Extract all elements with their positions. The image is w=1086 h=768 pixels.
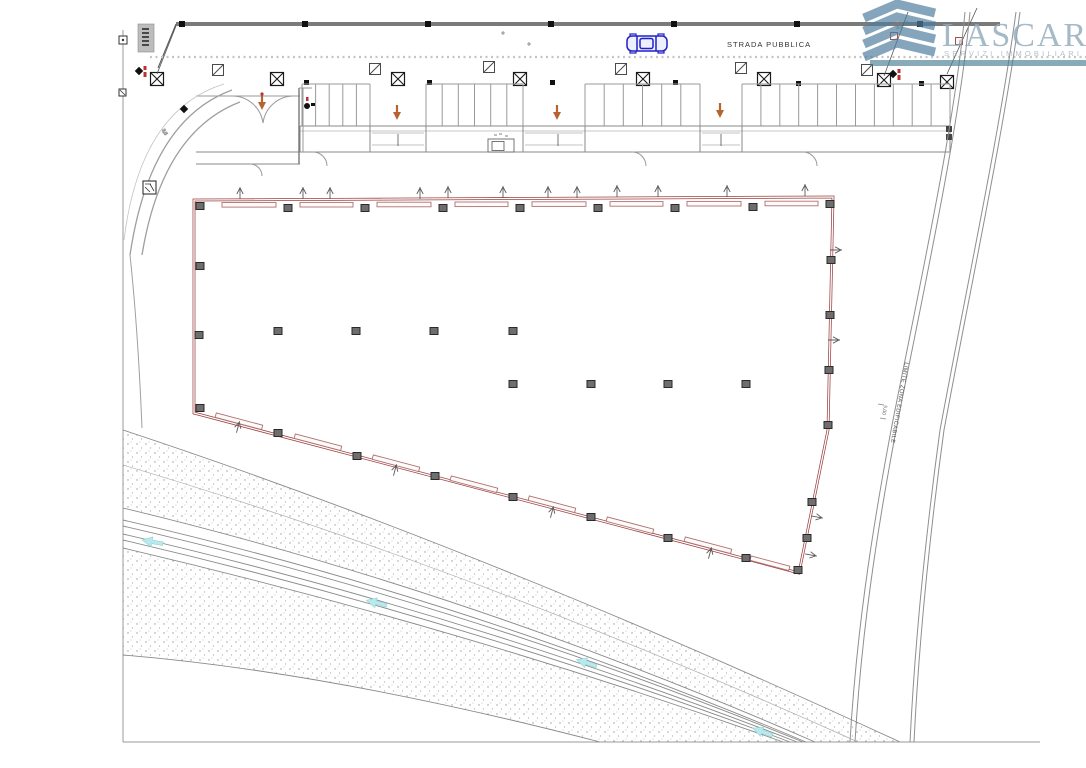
buildable-limit-label: LIMITE ZONA EDIFICABILE — [889, 362, 909, 444]
manhole-symbol — [143, 181, 156, 194]
access-road-curves: 3,5 — [124, 84, 240, 428]
walkway-kiosk — [488, 134, 514, 152]
building-chevrons-icon — [864, 4, 935, 57]
road-sign-block — [138, 24, 154, 52]
site-plan-drawing: STRADA PUBBLICA — [0, 0, 1086, 768]
survey-cross-marks — [501, 31, 531, 46]
buildable-zone-boundary — [850, 12, 1020, 742]
logo-tagline: SERVIZI IMMOBILIARI — [944, 49, 1082, 58]
entrance-gate — [196, 88, 312, 164]
gate-marker — [258, 92, 266, 110]
logo-underline — [870, 60, 1086, 66]
parking-stalls — [302, 84, 950, 126]
site-plan-image: STRADA PUBBLICA — [0, 0, 1086, 768]
svg-text:3,5: 3,5 — [161, 128, 169, 136]
road-label: STRADA PUBBLICA — [727, 40, 811, 49]
walkway — [196, 126, 952, 176]
dimension-annotation: 5,00 — [880, 405, 888, 416]
lamp-leader-lines — [157, 8, 977, 76]
car-icon — [627, 34, 667, 53]
utility-slash-boxes — [213, 62, 873, 76]
embankment-slope — [123, 430, 900, 742]
